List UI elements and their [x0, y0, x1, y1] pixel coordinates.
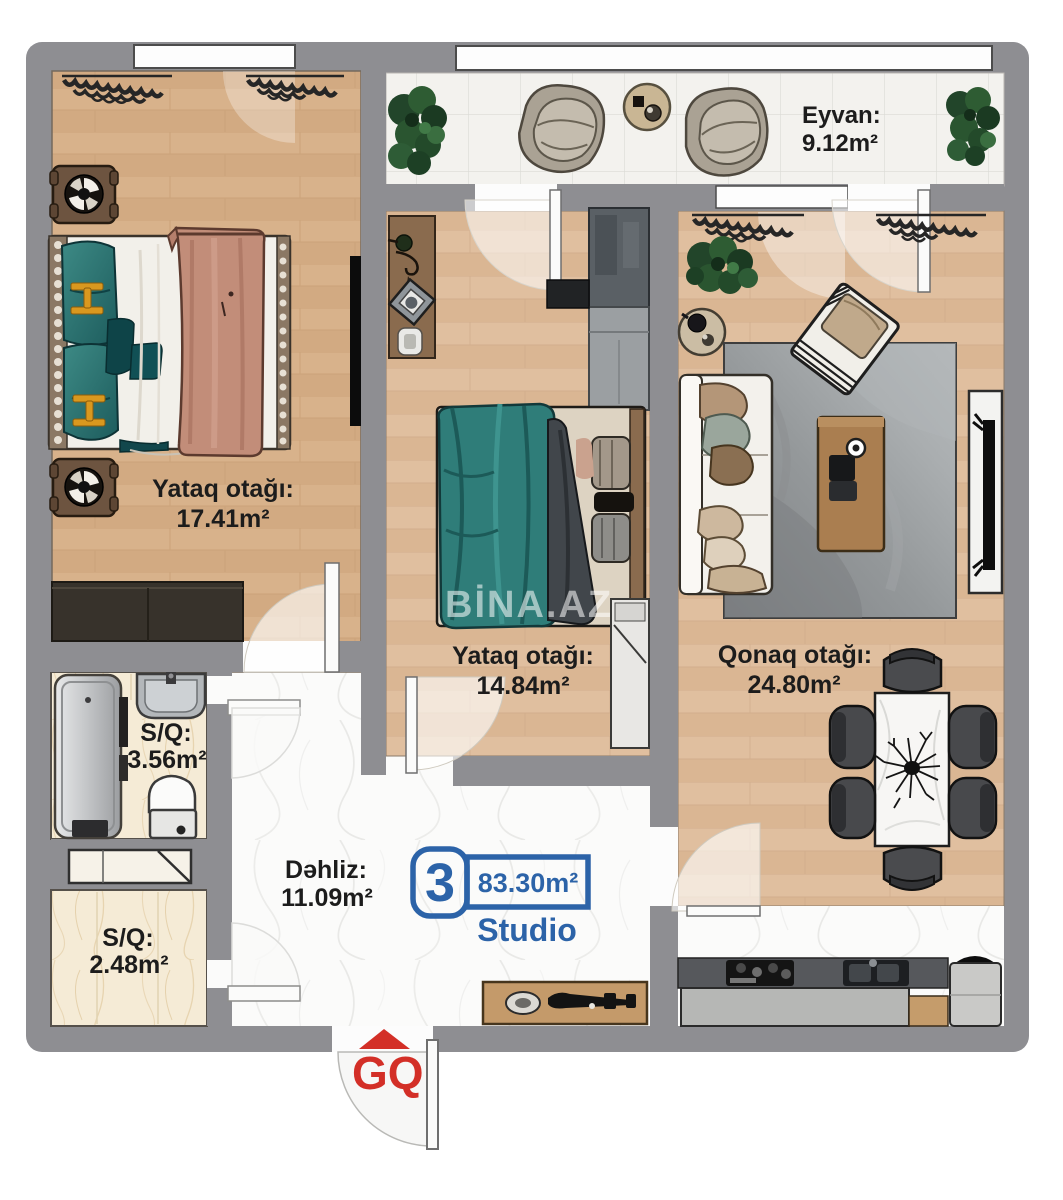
svg-text:BİNA.AZ: BİNA.AZ: [445, 584, 613, 626]
svg-text:Studio: Studio: [477, 912, 577, 948]
svg-text:GQ: GQ: [352, 1047, 424, 1099]
svg-text:24.80m²: 24.80m²: [747, 671, 840, 699]
svg-text:83.30m²: 83.30m²: [478, 868, 579, 898]
svg-text:Dəhliz:: Dəhliz:: [285, 856, 367, 884]
svg-text:Yataq otağı:: Yataq otağı:: [152, 475, 294, 503]
svg-text:Eyvan:: Eyvan:: [802, 102, 881, 129]
svg-text:S/Q:: S/Q:: [102, 924, 153, 952]
svg-text:3.56m²: 3.56m²: [127, 746, 206, 774]
svg-text:2.48m²: 2.48m²: [89, 951, 168, 979]
svg-text:14.84m²: 14.84m²: [476, 672, 569, 700]
svg-text:Qonaq otağı:: Qonaq otağı:: [718, 641, 872, 669]
svg-text:3: 3: [425, 853, 455, 913]
svg-text:Yataq otağı:: Yataq otağı:: [452, 642, 594, 670]
svg-text:S/Q:: S/Q:: [140, 719, 191, 747]
svg-text:17.41m²: 17.41m²: [176, 505, 269, 533]
svg-text:9.12m²: 9.12m²: [802, 130, 878, 157]
svg-text:11.09m²: 11.09m²: [281, 884, 373, 912]
